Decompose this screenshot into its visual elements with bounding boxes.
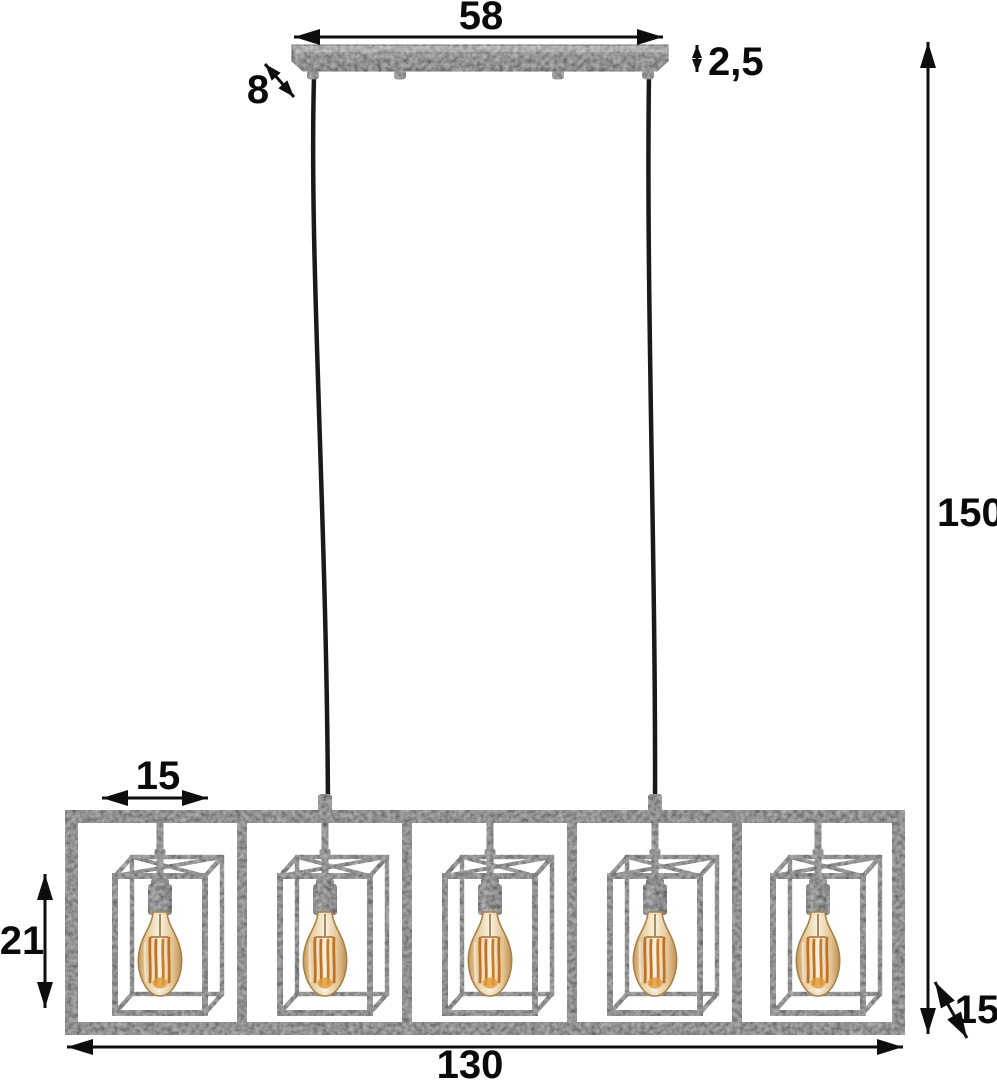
diagram-canvas: 58 2,5 8 150 15 21 130 15 [0, 0, 997, 1080]
dim-ceiling-mount-height: 2,5 [697, 40, 764, 84]
dim-hanging-height: 150 [928, 42, 997, 1034]
ceiling-bar-nub [395, 71, 406, 79]
bulb-3 [468, 912, 511, 996]
dim-fixture-width: 130 [67, 1043, 903, 1080]
cable-connector [318, 794, 332, 814]
ceiling-bar-top-highlight [296, 46, 664, 52]
dim-label-ceiling-mount-depth: 8 [247, 68, 269, 112]
cable-left [313, 77, 328, 812]
dim-label-hanging-height: 150 [937, 491, 997, 535]
metal-structure [72, 45, 899, 1029]
ceiling-bar-nub [308, 71, 319, 79]
ceiling-bar [292, 45, 668, 79]
dim-ceiling-mount-depth: 8 [247, 64, 294, 112]
bulb-5 [796, 912, 839, 996]
dim-ceiling-mount-width: 58 [294, 0, 663, 38]
dim-shade-width: 15 [102, 754, 208, 798]
cable-right [648, 74, 655, 812]
bulb-2 [303, 912, 346, 996]
dim-shade-depth: 15 [935, 982, 997, 1038]
ceiling-bar-nub [643, 71, 654, 79]
dim-label-ceiling-mount-width: 58 [459, 0, 504, 38]
dim-label-shade-width: 15 [136, 754, 181, 798]
bulb-4 [633, 912, 676, 996]
dim-line-ceiling-mount-depth [265, 64, 294, 97]
pendant-lamp-dimension-diagram: 58 2,5 8 150 15 21 130 15 [0, 0, 997, 1080]
ceiling-bar-nub [553, 71, 564, 79]
suspension-cables [313, 74, 655, 812]
dim-label-shade-height: 21 [0, 919, 44, 963]
cable-connector [648, 794, 662, 814]
dim-label-shade-depth: 15 [955, 988, 997, 1032]
bulb-1 [138, 912, 181, 996]
dim-label-ceiling-mount-height: 2,5 [708, 40, 764, 84]
dim-label-fixture-width: 130 [437, 1043, 504, 1080]
dim-shade-height: 21 [0, 874, 45, 1008]
